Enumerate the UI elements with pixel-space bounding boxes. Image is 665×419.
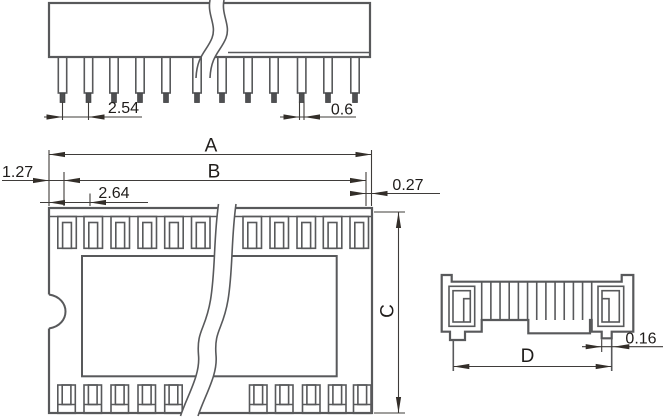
pin-shank: [58, 57, 66, 93]
contact-slot-inner: [333, 385, 342, 405]
end-ribs: [491, 282, 583, 320]
dim-pin-pitch: 2.54: [44, 100, 142, 120]
contact-slot: [303, 385, 321, 413]
contact-slot: [350, 217, 369, 249]
contact-slot: [276, 385, 294, 413]
pin-tip: [86, 93, 91, 103]
contact-slot-inner: [89, 223, 98, 249]
contact-slot-inner: [254, 385, 263, 405]
dim-pin-tip-width: 0.6: [280, 102, 356, 121]
pin-shank: [162, 57, 170, 93]
technical-drawing-canvas: 2.54 0.6: [0, 0, 665, 419]
contact-slot: [111, 385, 129, 413]
pin-shank: [270, 57, 278, 93]
dim-pin-thickness-label: 0.16: [625, 331, 656, 348]
dim-first-contact-offset-label: 2.64: [98, 185, 129, 202]
dip-socket-drawing: 2.54 0.6: [0, 0, 665, 419]
dim-B-label: B: [208, 162, 221, 183]
contact-slot: [297, 217, 316, 249]
pin-tip: [272, 93, 277, 103]
contact-slot: [138, 385, 156, 413]
pin-shank: [298, 57, 306, 93]
side-view: 2.54 0.6: [44, 0, 370, 120]
pin-tip: [195, 93, 200, 103]
contact-slot: [250, 385, 268, 413]
contact-slot: [138, 217, 157, 249]
pin-tip: [326, 93, 331, 103]
contact-slot-inner: [355, 223, 364, 249]
dim-pin-row-spacing: D: [453, 346, 611, 369]
pin-shank: [218, 57, 226, 93]
contact-slot-inner: [328, 223, 337, 249]
pin-tip: [164, 93, 169, 103]
pin-tip: [60, 93, 65, 103]
end-right-contact-detail: [598, 286, 624, 326]
pin-tip: [246, 93, 251, 103]
contact-slot-inner: [115, 385, 124, 405]
pin-tip: [299, 93, 304, 103]
dim-A-label: A: [205, 136, 218, 157]
dim-right-offset: 0.27: [350, 177, 440, 196]
pin-shank: [351, 57, 359, 93]
dim-pin-pitch-label: 2.54: [108, 100, 139, 117]
dim-right-offset-label: 0.27: [392, 177, 423, 194]
contact-slot: [58, 385, 76, 413]
end-left-contact-detail: [449, 286, 475, 326]
contact-slot-inner: [143, 223, 152, 249]
pin-shank: [110, 57, 118, 93]
contact-slot: [243, 217, 262, 249]
contact-slot-inner: [63, 223, 72, 249]
contact-slot: [165, 385, 183, 413]
end-view: D 0.16: [442, 275, 663, 371]
top-view: A B 1.27 0.27 2.64: [2, 136, 440, 417]
contact-slot-inner: [302, 223, 311, 249]
pin-tip: [353, 93, 358, 103]
pin-shank: [244, 57, 252, 93]
contact-slot-inner: [275, 223, 284, 249]
contact-slot-inner: [196, 223, 205, 249]
contact-slot-inner: [280, 385, 289, 405]
dim-pin-tip-width-label: 0.6: [331, 102, 353, 119]
dim-pin-thickness: 0.16: [582, 331, 663, 350]
contact-slot-inner: [170, 223, 179, 249]
contact-slot: [270, 217, 289, 249]
contact-slot: [354, 385, 372, 413]
contact-slot-inner: [88, 385, 97, 405]
dim-contact-row-span: B 1.27: [2, 162, 366, 184]
contact-slot-inner: [142, 385, 151, 405]
contact-slot-inner: [116, 223, 125, 249]
contact-slot-inner: [307, 385, 316, 405]
dim-D-label: D: [521, 346, 535, 367]
pin-shank: [324, 57, 332, 93]
dim-C-label: C: [378, 304, 399, 318]
contact-slot: [192, 217, 211, 249]
contact-slot: [84, 217, 103, 249]
pin-shank: [84, 57, 92, 93]
dim-overall-length: A: [49, 136, 372, 158]
contact-slot: [323, 217, 342, 249]
contact-slot-inner: [358, 385, 367, 405]
notch-mask: [47, 295, 66, 329]
contact-slot: [58, 217, 77, 249]
contact-slot: [111, 217, 130, 249]
pin-shank: [136, 57, 144, 93]
contact-slot-inner: [248, 223, 257, 249]
pin-tip: [220, 93, 225, 103]
contact-slots-bottom-row: [58, 385, 371, 413]
contact-slot-inner: [169, 385, 178, 405]
contact-slot-inner: [62, 385, 71, 405]
dim-first-contact-offset: 2.64: [40, 185, 148, 205]
contact-slot: [165, 217, 184, 249]
contact-slot: [329, 385, 347, 413]
dim-body-width: C: [378, 212, 402, 413]
contact-slots-top-row: [58, 217, 369, 249]
contact-slot: [84, 385, 102, 413]
dim-left-offset-label: 1.27: [2, 164, 33, 181]
